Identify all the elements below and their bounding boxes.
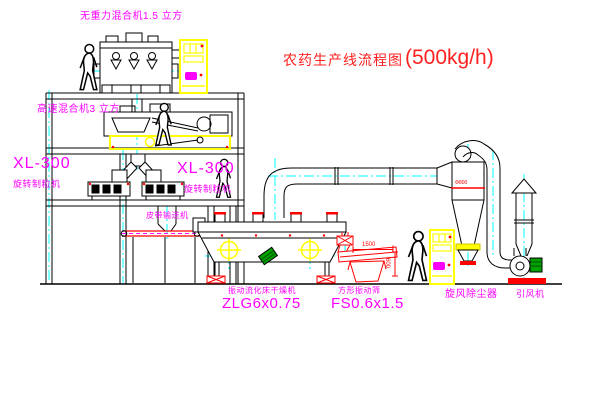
dimension-screen-height: 600 xyxy=(384,258,390,268)
flow-diagram-canvas: 农药生产线流程图 (500kg/h) 无重力混合机1.5 立方 高速混合机3 立… xyxy=(0,0,600,403)
dryer-exhaust-duct xyxy=(264,167,437,218)
control-cabinet xyxy=(430,230,454,284)
title-text: 农药生产线流程图 xyxy=(283,50,403,70)
label-vibrating-screen-model: FS0.6x1.5 xyxy=(331,296,404,311)
label-granulator-left-name: 旋转制粒机 xyxy=(13,180,61,189)
label-no-gravity-mixer: 无重力混合机1.5 立方 xyxy=(80,12,183,22)
label-vibrating-screen: 方形振动筛 xyxy=(338,287,381,295)
label-fluid-bed-dryer: 振动流化床干燥机 xyxy=(228,287,296,295)
label-belt-conveyor: 皮带输送机 xyxy=(146,212,189,220)
induced-draft-fan-drawing xyxy=(508,248,546,284)
granulator-left-drawing xyxy=(88,170,130,200)
worker-figure xyxy=(409,232,427,281)
diagram-title: 农药生产线流程图 (500kg/h) xyxy=(283,46,494,70)
label-fluid-bed-dryer-model: ZLG6x0.75 xyxy=(222,296,301,311)
no-gravity-mixer-drawing xyxy=(94,33,186,93)
label-cyclone: 旋风除尘器 xyxy=(445,290,498,300)
dimension-cyclone: Φ800 xyxy=(455,181,467,186)
label-granulator-left-model: XL-300 xyxy=(13,156,71,172)
label-induced-draft-fan: 引风机 xyxy=(516,290,545,299)
label-granulator-right-model: XL-300 xyxy=(177,161,235,177)
control-cabinet xyxy=(180,40,207,93)
label-granulator-right-name: 旋转制粒机 xyxy=(184,185,232,194)
label-high-speed-mixer: 高速混合机3 立方 xyxy=(37,105,120,115)
title-capacity: (500kg/h) xyxy=(405,46,494,70)
fluid-bed-dryer-drawing xyxy=(193,212,346,283)
dimension-screen-length: 1500 xyxy=(362,242,375,248)
